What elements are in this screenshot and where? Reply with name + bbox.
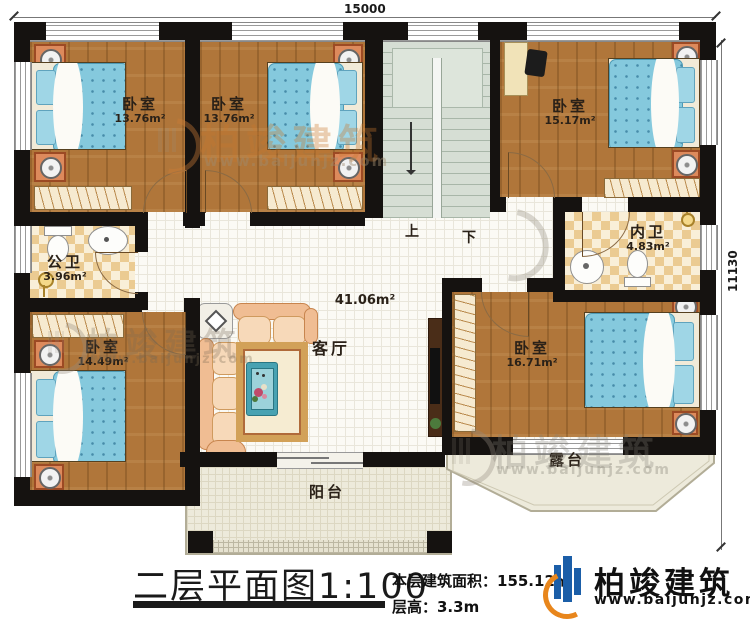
brand-logo-icon [543, 549, 591, 615]
toilet-icon [627, 250, 648, 278]
sheet-fold [53, 62, 83, 150]
logo-swoosh-icon [537, 565, 597, 622]
nightstand [34, 464, 64, 490]
stair-direction-arrow [406, 170, 416, 180]
living-area-label: 41.06m² [330, 294, 400, 309]
stair-up: 上 [398, 224, 426, 240]
dimension-top-value: 15000 [344, 2, 386, 16]
nightstand [34, 152, 66, 182]
room-area: 4.83m² [613, 241, 683, 254]
bed [30, 370, 126, 462]
wall [527, 278, 565, 292]
room-area: 16.71m² [495, 357, 569, 370]
wall [343, 22, 408, 40]
watermark-logo-bars [158, 128, 176, 152]
lamp-icon [675, 413, 697, 435]
wall [363, 452, 445, 467]
room-label-public-bathroom: 公卫 3.96m² [30, 254, 100, 284]
wall [135, 212, 148, 252]
wall [553, 197, 582, 212]
wall [159, 22, 232, 40]
wall [184, 298, 200, 312]
pillow [673, 365, 694, 404]
room-name: 卧室 [533, 98, 607, 115]
wall [14, 212, 143, 226]
room-name: 卧室 [192, 96, 266, 113]
sheet-fold [53, 370, 83, 462]
dimension-right-value: 11130 [726, 250, 740, 292]
wall [490, 40, 500, 212]
balcony-post [427, 531, 452, 553]
window [14, 373, 32, 477]
wardrobe [604, 178, 700, 198]
room-area: 3.96m² [30, 271, 100, 284]
plant-icon [430, 418, 441, 429]
sheet-fold [651, 58, 679, 148]
lamp-icon [40, 157, 62, 179]
bed [584, 312, 700, 408]
room-area: 41.06m² [330, 294, 400, 309]
pillow [337, 70, 357, 105]
wall [478, 22, 527, 40]
stair-direction-line [410, 122, 412, 174]
watermark-url: www.baijunjz.com [90, 352, 255, 367]
dimension-tick [9, 11, 19, 21]
wall [14, 298, 142, 312]
watermark-logo-bars [48, 331, 64, 353]
watermark-logo-bars [452, 438, 470, 464]
toilet-tank [624, 277, 651, 287]
room-name: 客厅 [296, 340, 366, 358]
wall [183, 212, 205, 226]
sofa-cushion [238, 316, 271, 345]
sink-drain [104, 237, 109, 242]
wall [553, 290, 716, 302]
dimension-line-right [721, 40, 722, 550]
floor-drain-icon [681, 213, 695, 227]
window [700, 225, 718, 270]
flower-icon [262, 394, 267, 399]
window [700, 60, 718, 145]
wardrobe [454, 294, 476, 432]
table-dot [262, 374, 265, 377]
room-name: 公卫 [30, 254, 100, 271]
balcony-post [188, 531, 213, 553]
wall [14, 490, 200, 506]
title-underline [133, 601, 385, 608]
room-label-balcony: 阳台 [292, 484, 362, 501]
room-area: 15.17m² [533, 115, 607, 128]
room-label-living: 客厅 [296, 340, 366, 358]
table-dot [256, 372, 259, 375]
wardrobe [267, 186, 363, 210]
pillow [673, 322, 694, 361]
floor-height-text: 层高：3.3m [392, 596, 479, 617]
dimension-tick [711, 11, 721, 21]
stair-up-label: 上 [398, 224, 426, 240]
window [700, 315, 718, 410]
wardrobe [34, 186, 132, 210]
room-name: 卧室 [103, 96, 177, 113]
sink-drain [583, 263, 589, 269]
wall [250, 212, 365, 226]
wall [628, 197, 716, 212]
room-name: 阳台 [292, 484, 362, 501]
balcony-rail-grid [213, 540, 427, 553]
room-label-bedroom-bottom-right: 卧室 16.71m² [495, 340, 569, 370]
tv-icon [524, 49, 547, 78]
tv-icon [430, 348, 440, 404]
floor-plan: 卧室 13.76m² 卧室 13.76m² 卧室 15.17m² 公卫 3.96… [0, 0, 750, 622]
wall [442, 278, 452, 455]
drain-pipe [43, 285, 45, 297]
bed [608, 58, 700, 148]
flower-icon [261, 384, 267, 390]
sheet-fold [643, 312, 675, 408]
room-name: 卧室 [495, 340, 569, 357]
watermark-url: www.baijunjz.com [204, 152, 389, 170]
watermark-url: www.baijunjz.com [496, 462, 671, 478]
window [14, 62, 32, 150]
wall [442, 278, 482, 292]
lamp-icon [39, 467, 61, 489]
sliding-door [277, 452, 363, 469]
room-name: 内卫 [613, 224, 683, 241]
dimension-line-top [14, 17, 716, 18]
nightstand [672, 150, 700, 178]
flower-icon [252, 396, 258, 402]
nightstand [672, 411, 698, 435]
stair-divider [432, 58, 442, 218]
brand-website: www.baijunjz.com [594, 592, 750, 608]
room-label-inner-bathroom: 内卫 4.83m² [613, 224, 683, 254]
room-label-bedroom-top-right: 卧室 15.17m² [533, 98, 607, 128]
wall [180, 452, 277, 467]
lamp-icon [676, 154, 698, 176]
